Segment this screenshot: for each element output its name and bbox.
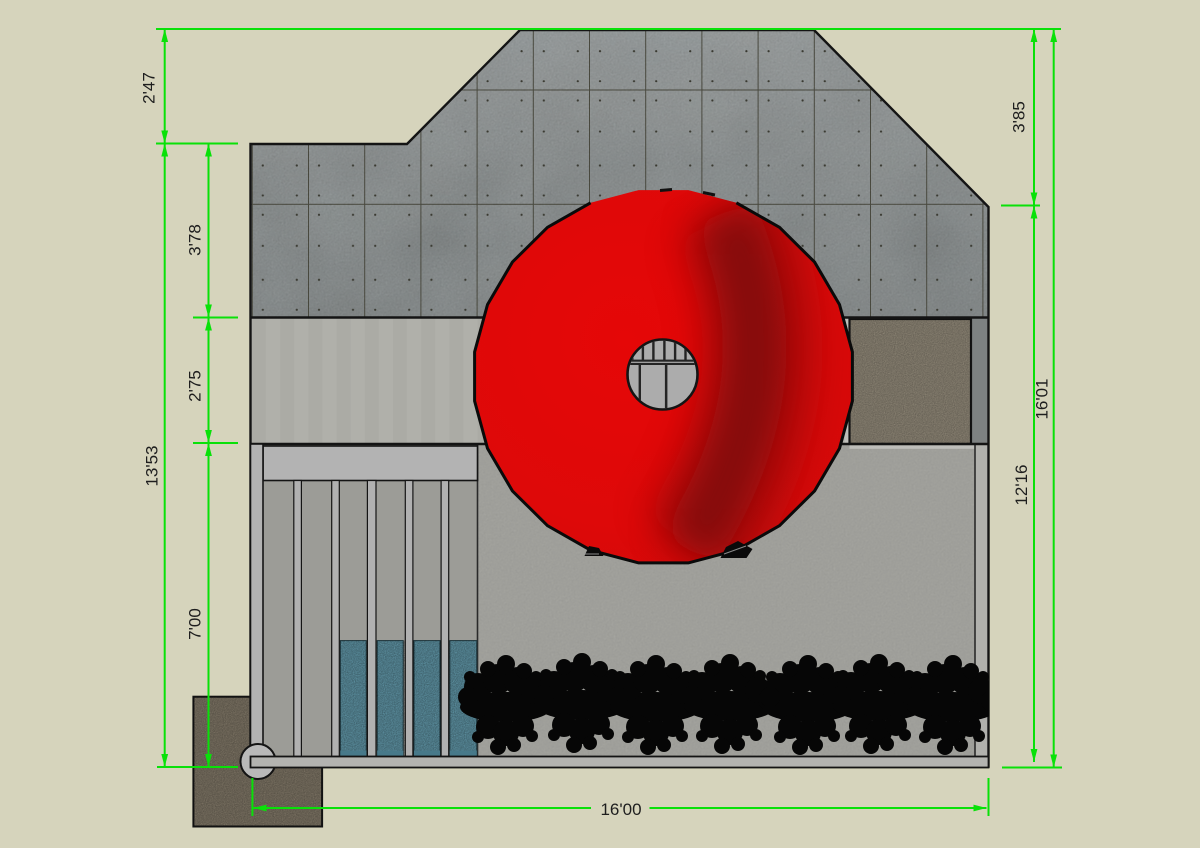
svg-text:2'47: 2'47 [139, 72, 158, 104]
svg-text:3'78: 3'78 [185, 224, 204, 256]
svg-text:16'00: 16'00 [600, 800, 641, 819]
svg-text:3'85: 3'85 [1009, 101, 1028, 133]
svg-text:7'00: 7'00 [185, 608, 204, 640]
svg-text:12'16: 12'16 [1012, 464, 1031, 505]
svg-text:16'01: 16'01 [1032, 378, 1051, 419]
svg-text:13'53: 13'53 [142, 445, 161, 486]
svg-text:2'75: 2'75 [185, 370, 204, 402]
